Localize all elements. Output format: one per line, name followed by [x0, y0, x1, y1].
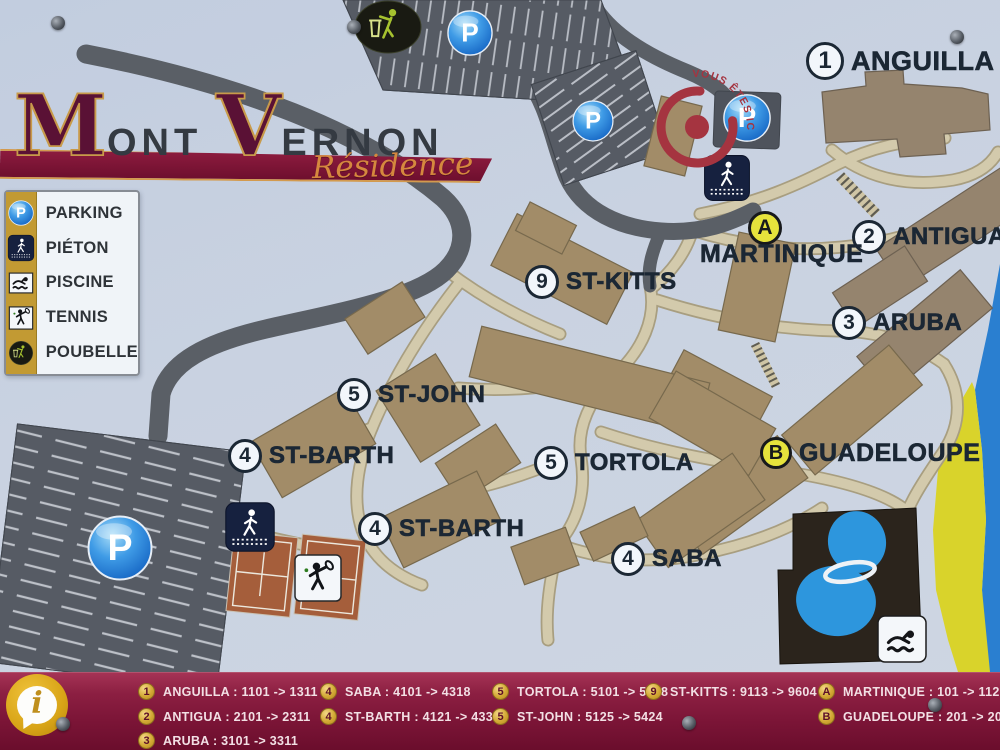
parking-icon: P [448, 11, 492, 55]
map-label-aruba: 3 ARUBA [832, 306, 962, 340]
entry-badge: B [818, 708, 835, 725]
directory-entry-martinique: A MARTINIQUE : 101 -> 112 [818, 683, 1000, 700]
pool-icon [7, 269, 35, 297]
screw [950, 30, 964, 44]
entry-text: MARTINIQUE : 101 -> 112 [843, 685, 1000, 699]
parking-icon: P [7, 199, 35, 227]
svg-text:P: P [461, 17, 479, 47]
map-label-st-kitts: 9 ST-KITTS [525, 265, 677, 299]
badge: 9 [525, 265, 559, 299]
entry-text: ST-KITTS : 9113 -> 9604 [670, 685, 817, 699]
badge: 1 [806, 42, 844, 80]
legend-labels: PARKING PIÉTON PISCINE TENNIS POUBELLE [37, 192, 138, 374]
info-bubble: i [17, 686, 57, 724]
badge: 5 [534, 446, 568, 480]
label: SABA [652, 545, 722, 573]
trash-icon [355, 1, 421, 53]
parking-icon: P [89, 517, 152, 580]
entry-badge: 1 [138, 683, 155, 700]
directory-entry-aruba: 3 ARUBA : 3101 -> 3311 [138, 732, 298, 749]
pool-swimmer-icon [878, 616, 926, 662]
legend-label-piscine: PISCINE [46, 273, 138, 292]
badge: B [760, 437, 792, 469]
map-label-antigua: 2 ANTIGUA [852, 220, 1000, 254]
label: ST-JOHN [378, 381, 486, 409]
parking-icon: P [573, 101, 613, 141]
entry-badge: 3 [138, 732, 155, 749]
label: ARUBA [873, 309, 962, 337]
map-label-st-barth-2: 4 ST-BARTH [358, 512, 524, 546]
label: GUADELOUPE [799, 439, 980, 468]
map-label-guadeloupe: B GUADELOUPE [760, 437, 980, 469]
label: ST-BARTH [269, 442, 394, 470]
directory-entry-st-barth: 4 ST-BARTH : 4121 -> 4338 [320, 708, 500, 725]
entry-text: ANTIGUA : 2101 -> 2311 [163, 710, 311, 724]
directory-entry-saba: 4 SABA : 4101 -> 4318 [320, 683, 471, 700]
title-initial-m: M [14, 76, 107, 175]
tennis-icon [7, 304, 35, 332]
legend-label-poubelle: POUBELLE [46, 343, 138, 362]
svg-text:P: P [16, 205, 26, 221]
map-label-martinique: MARTINIQUE [700, 240, 863, 269]
legend-label-tennis: TENNIS [46, 308, 138, 327]
directory-entry-anguilla: 1 ANGUILLA : 1101 -> 1311 [138, 683, 318, 700]
pedestrian-icon [7, 234, 35, 262]
info-glyph: i [31, 686, 42, 721]
legend-icon-strip: P [6, 192, 37, 374]
entry-badge: 4 [320, 683, 337, 700]
entry-badge: 9 [645, 683, 662, 700]
entry-text: ANGUILLA : 1101 -> 1311 [163, 685, 318, 699]
entry-text: ST-JOHN : 5125 -> 5424 [517, 710, 663, 724]
screw [51, 16, 65, 30]
directory-bar: 1 ANGUILLA : 1101 -> 1311 2 ANTIGUA : 21… [0, 672, 1000, 750]
tennis-icon [295, 555, 341, 601]
entry-text: GUADELOUPE : 201 -> 208 [843, 710, 1000, 724]
map-legend: P PARKING PIÉTON PISCINE TENNIS POUBELLE [4, 190, 140, 376]
label: ANGUILLA [851, 46, 994, 77]
legend-label-pieton: PIÉTON [46, 239, 138, 258]
entry-badge: 5 [492, 683, 509, 700]
entry-text: ST-BARTH : 4121 -> 4338 [345, 710, 500, 724]
svg-text:P: P [585, 108, 601, 135]
directory-entry-antigua: 2 ANTIGUA : 2101 -> 2311 [138, 708, 311, 725]
badge: 5 [337, 378, 371, 412]
map-label-tortola: 5 TORTOLA [534, 446, 694, 480]
label: ANTIGUA [893, 223, 1000, 251]
screw [56, 717, 70, 731]
entry-text: ARUBA : 3101 -> 3311 [163, 734, 298, 748]
title-rest-ont: ONT [107, 122, 202, 164]
title-subtitle: Résidence [312, 146, 474, 186]
entry-badge: 2 [138, 708, 155, 725]
mont-vernon-sign: P P P P VOUS ÊTES ICI MONTVERNON Résiden… [0, 0, 1000, 750]
directory-entry-st-kitts: 9 ST-KITTS : 9113 -> 9604 [645, 683, 817, 700]
entry-badge: 4 [320, 708, 337, 725]
pedestrian-icon [226, 503, 274, 551]
badge: 4 [228, 439, 262, 473]
map-label-st-barth-1: 4 ST-BARTH [228, 439, 394, 473]
entry-badge: A [818, 683, 835, 700]
badge: 4 [611, 542, 645, 576]
pool-area [778, 506, 926, 664]
entry-text: SABA : 4101 -> 4318 [345, 685, 471, 699]
svg-text:P: P [107, 526, 132, 568]
label: TORTOLA [575, 449, 694, 477]
directory-entry-guadeloupe: B GUADELOUPE : 201 -> 208 [818, 708, 1000, 725]
label: ST-KITTS [566, 268, 677, 296]
entry-badge: 5 [492, 708, 509, 725]
title-initial-v: V [216, 76, 281, 175]
map-label-saba: 4 SABA [611, 542, 722, 576]
label: MARTINIQUE [700, 240, 863, 269]
legend-label-parking: PARKING [46, 204, 138, 223]
directory-entry-st-john: 5 ST-JOHN : 5125 -> 5424 [492, 708, 663, 725]
label: ST-BARTH [399, 515, 524, 543]
screw [682, 716, 696, 730]
badge: 3 [832, 306, 866, 340]
map-label-st-john: 5 ST-JOHN [337, 378, 486, 412]
trash-icon [7, 339, 35, 367]
badge: 4 [358, 512, 392, 546]
directory-entry-tortola: 5 TORTOLA : 5101 -> 5318 [492, 683, 668, 700]
screw [347, 20, 361, 34]
screw [928, 698, 942, 712]
map-label-anguilla: 1 ANGUILLA [806, 42, 994, 80]
